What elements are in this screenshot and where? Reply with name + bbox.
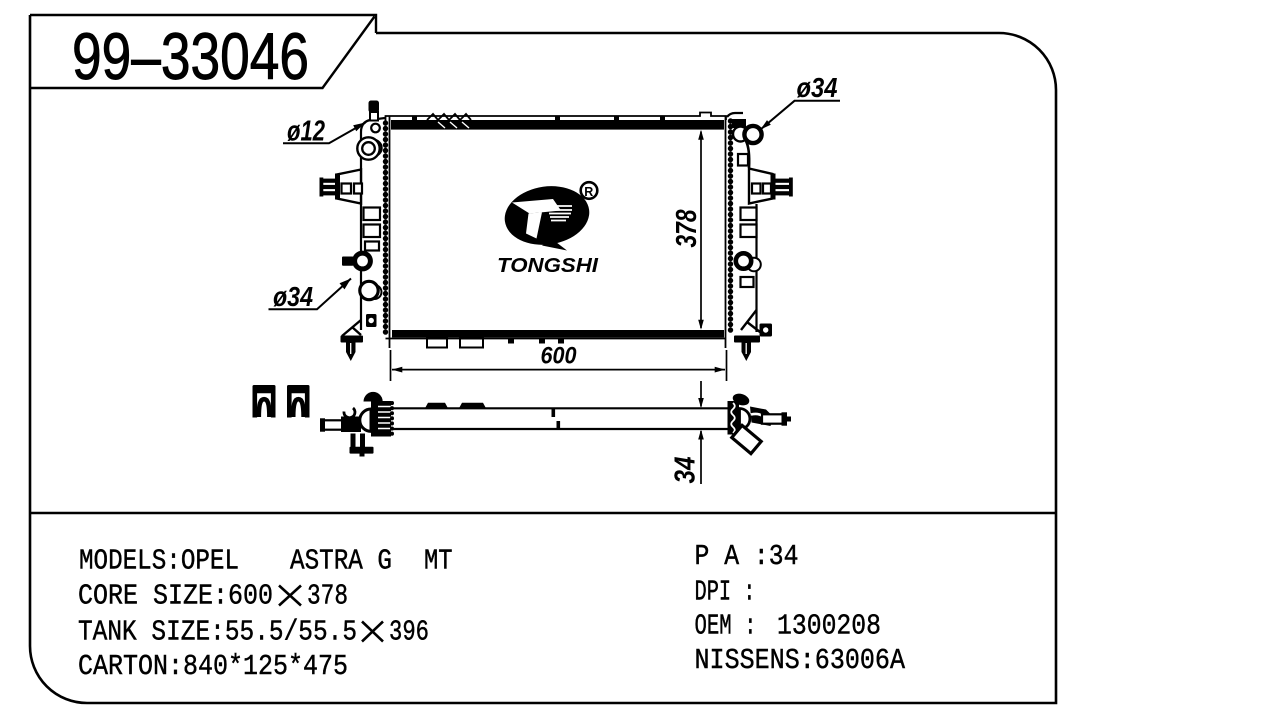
svg-text:TONGSHI: TONGSHI (497, 254, 599, 277)
svg-text:MT: MT (424, 545, 453, 578)
svg-text:NISSENS:63006A: NISSENS:63006A (695, 644, 906, 677)
svg-text:378: 378 (671, 209, 703, 248)
svg-text:378: 378 (307, 580, 348, 613)
svg-text:ø34: ø34 (273, 281, 313, 312)
svg-text:CORE SIZE:600: CORE SIZE:600 (78, 580, 273, 613)
svg-text:CARTON:840*125*475: CARTON:840*125*475 (78, 650, 348, 683)
svg-text:ø34: ø34 (797, 72, 838, 103)
svg-text:TANK SIZE:55.5/55.5: TANK SIZE:55.5/55.5 (78, 616, 357, 649)
svg-text:DPI :: DPI : (695, 576, 756, 609)
svg-text:1300208: 1300208 (777, 610, 881, 643)
svg-text:ASTRA G: ASTRA G (290, 545, 392, 578)
svg-text:MODELS:OPEL: MODELS:OPEL (79, 545, 239, 578)
svg-text:396: 396 (389, 616, 429, 649)
svg-text:34: 34 (670, 456, 702, 483)
svg-text:OEM :: OEM : (695, 610, 757, 643)
svg-text:99–33046: 99–33046 (72, 19, 309, 93)
svg-text:R: R (584, 185, 593, 199)
svg-text:P A :34: P A :34 (695, 540, 799, 573)
svg-text:600: 600 (541, 343, 577, 370)
